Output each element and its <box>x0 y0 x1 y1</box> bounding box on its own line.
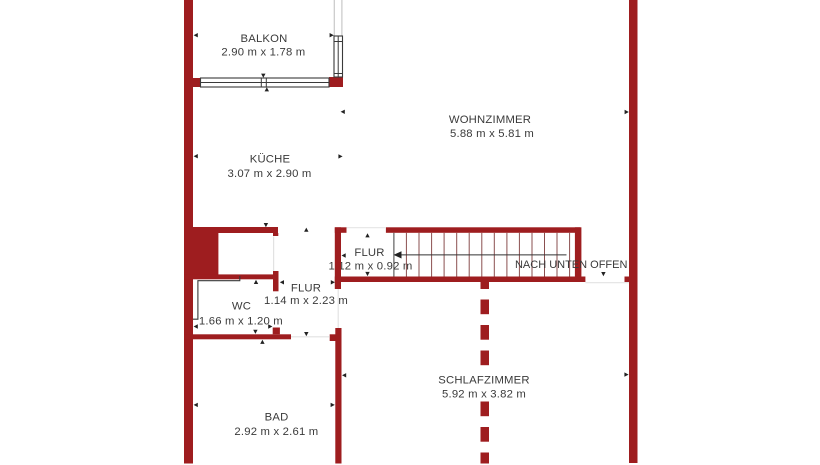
svg-text:WC: WC <box>232 301 251 313</box>
svg-text:KÜCHE: KÜCHE <box>250 153 291 165</box>
svg-text:NACH UNTEN OFFEN: NACH UNTEN OFFEN <box>515 259 628 271</box>
svg-text:BAD: BAD <box>265 412 289 424</box>
svg-text:3.07 m x 2.90 m: 3.07 m x 2.90 m <box>228 168 312 180</box>
svg-text:1.12 m x 0.92 m: 1.12 m x 0.92 m <box>329 261 413 273</box>
svg-text:1.14 m x 2.23 m: 1.14 m x 2.23 m <box>264 295 348 307</box>
svg-text:FLUR: FLUR <box>354 247 384 259</box>
svg-text:2.92 m x 2.61 m: 2.92 m x 2.61 m <box>234 426 318 438</box>
svg-text:5.88 m x 5.81 m: 5.88 m x 5.81 m <box>450 128 534 140</box>
svg-text:1.66 m x 1.20 m: 1.66 m x 1.20 m <box>199 316 283 328</box>
svg-text:SCHLAFZIMMER: SCHLAFZIMMER <box>438 375 530 387</box>
svg-text:WOHNZIMMER: WOHNZIMMER <box>449 114 531 126</box>
svg-text:FLUR: FLUR <box>291 283 321 295</box>
svg-text:BALKON: BALKON <box>240 33 287 45</box>
svg-text:2.90 m x 1.78 m: 2.90 m x 1.78 m <box>221 47 305 59</box>
svg-text:5.92 m x 3.82 m: 5.92 m x 3.82 m <box>442 389 526 401</box>
